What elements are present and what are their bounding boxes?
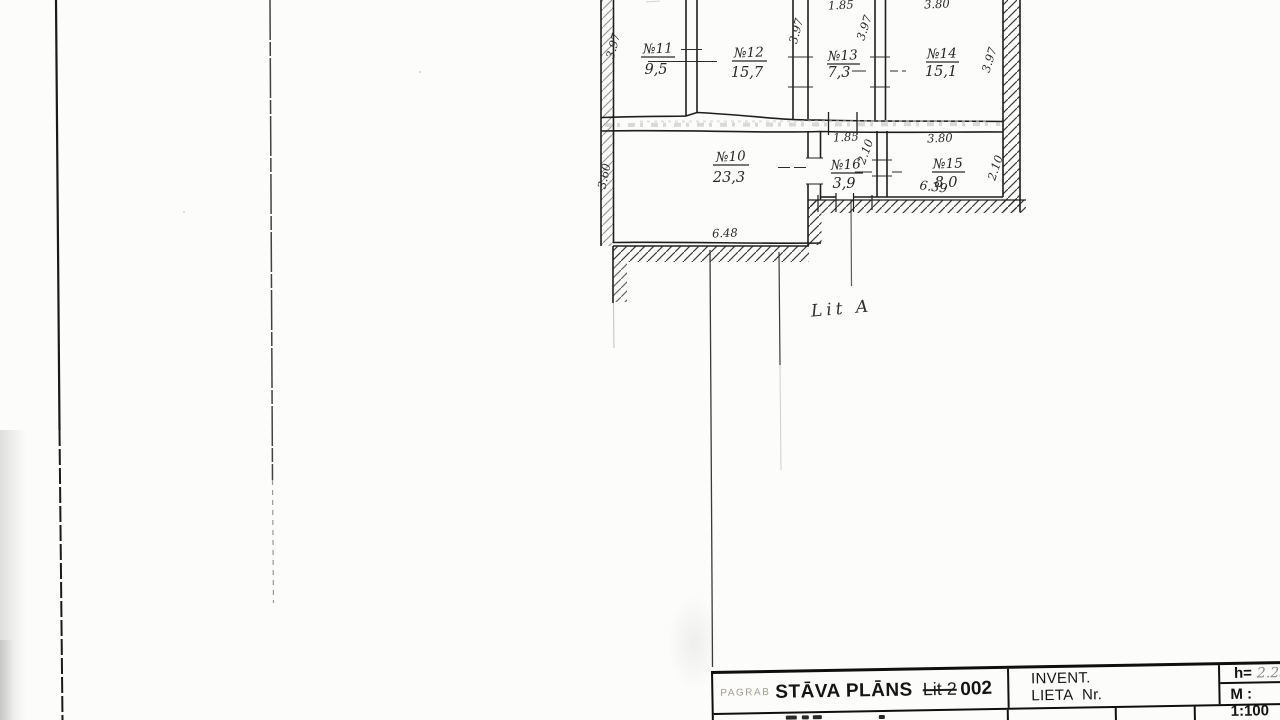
struck-lit-label: Lit 2 xyxy=(923,679,957,701)
dim-bottom-10: 6.48 xyxy=(712,226,738,241)
room-16-area: 3,9 xyxy=(832,176,855,192)
room-12-number: №12 xyxy=(733,44,764,61)
scan-shadow-corner xyxy=(0,640,14,720)
dim-handwritten-15: 6.39 xyxy=(919,177,948,195)
room-14-number: №14 xyxy=(926,45,957,62)
title-block: PAGRAB STĀVA PLĀNS Lit 2 002 INVENT. LIE… xyxy=(711,661,1280,720)
invent-cell: INVENT. LIETA Nr. xyxy=(1009,665,1221,708)
lit-a-annotation: Lit A xyxy=(809,296,873,321)
dim-top-15: 3.80 xyxy=(927,131,953,146)
dim-left-13: 3.97 xyxy=(786,16,806,45)
lieta-nr-label: LIETA Nr. xyxy=(1031,684,1218,704)
drawing-title: STĀVA PLĀNS xyxy=(775,679,913,703)
clipped-letter-mark xyxy=(802,715,809,719)
clipped-letter-mark xyxy=(786,716,797,720)
room-13-area: 7,3 xyxy=(827,65,850,81)
room-14-area: 15,1 xyxy=(925,64,957,80)
room-13-number: №13 xyxy=(826,47,858,65)
partial-cell xyxy=(1117,707,1197,720)
partial-cell xyxy=(1196,705,1280,720)
dim-top-14: 3.80 xyxy=(924,0,950,11)
room-11-area: 9,5 xyxy=(644,62,667,78)
scanned-sheet: №11 9,5 №12 15,7 №13 7,3 №14 15,1 №10 23… xyxy=(0,0,1280,720)
clipped-letter-mark xyxy=(813,715,822,719)
floor-plan-drawing: №11 9,5 №12 15,7 №13 7,3 №14 15,1 №10 23… xyxy=(0,0,1280,720)
room-10-area: 23,3 xyxy=(712,170,745,186)
height-label: h= xyxy=(1234,665,1252,682)
room-15-number: №15 xyxy=(932,155,963,172)
room-12-area: 15,7 xyxy=(731,65,764,81)
dim-right-13: 3.97 xyxy=(854,13,875,42)
room-labels: №11 9,5 №12 15,7 №13 7,3 №14 15,1 №10 23… xyxy=(642,40,963,192)
scale-cell: h= 2.25 M : 1:100 xyxy=(1220,664,1280,704)
partial-cell xyxy=(1009,708,1118,720)
clipped-letter-mark xyxy=(879,715,885,719)
sheet-edge-lines xyxy=(56,0,274,720)
room-11-number: №11 xyxy=(642,40,673,57)
pagrab-stamp: PAGRAB xyxy=(720,687,770,699)
handwritten-number: 002 xyxy=(960,677,993,701)
dim-top-13: 1.85 xyxy=(828,0,854,13)
room-10-number: №10 xyxy=(714,148,746,166)
extension-lines xyxy=(710,200,852,667)
title-cell: PAGRAB STĀVA PLĀNS Lit 2 002 xyxy=(713,669,1010,713)
height-value: 2.25 xyxy=(1257,664,1280,681)
scan-smudge xyxy=(668,595,720,690)
dim-top-16: 1.85 xyxy=(833,129,859,144)
height-row: h= 2.25 xyxy=(1220,664,1280,684)
dim-right-14: 3.97 xyxy=(979,45,1000,74)
